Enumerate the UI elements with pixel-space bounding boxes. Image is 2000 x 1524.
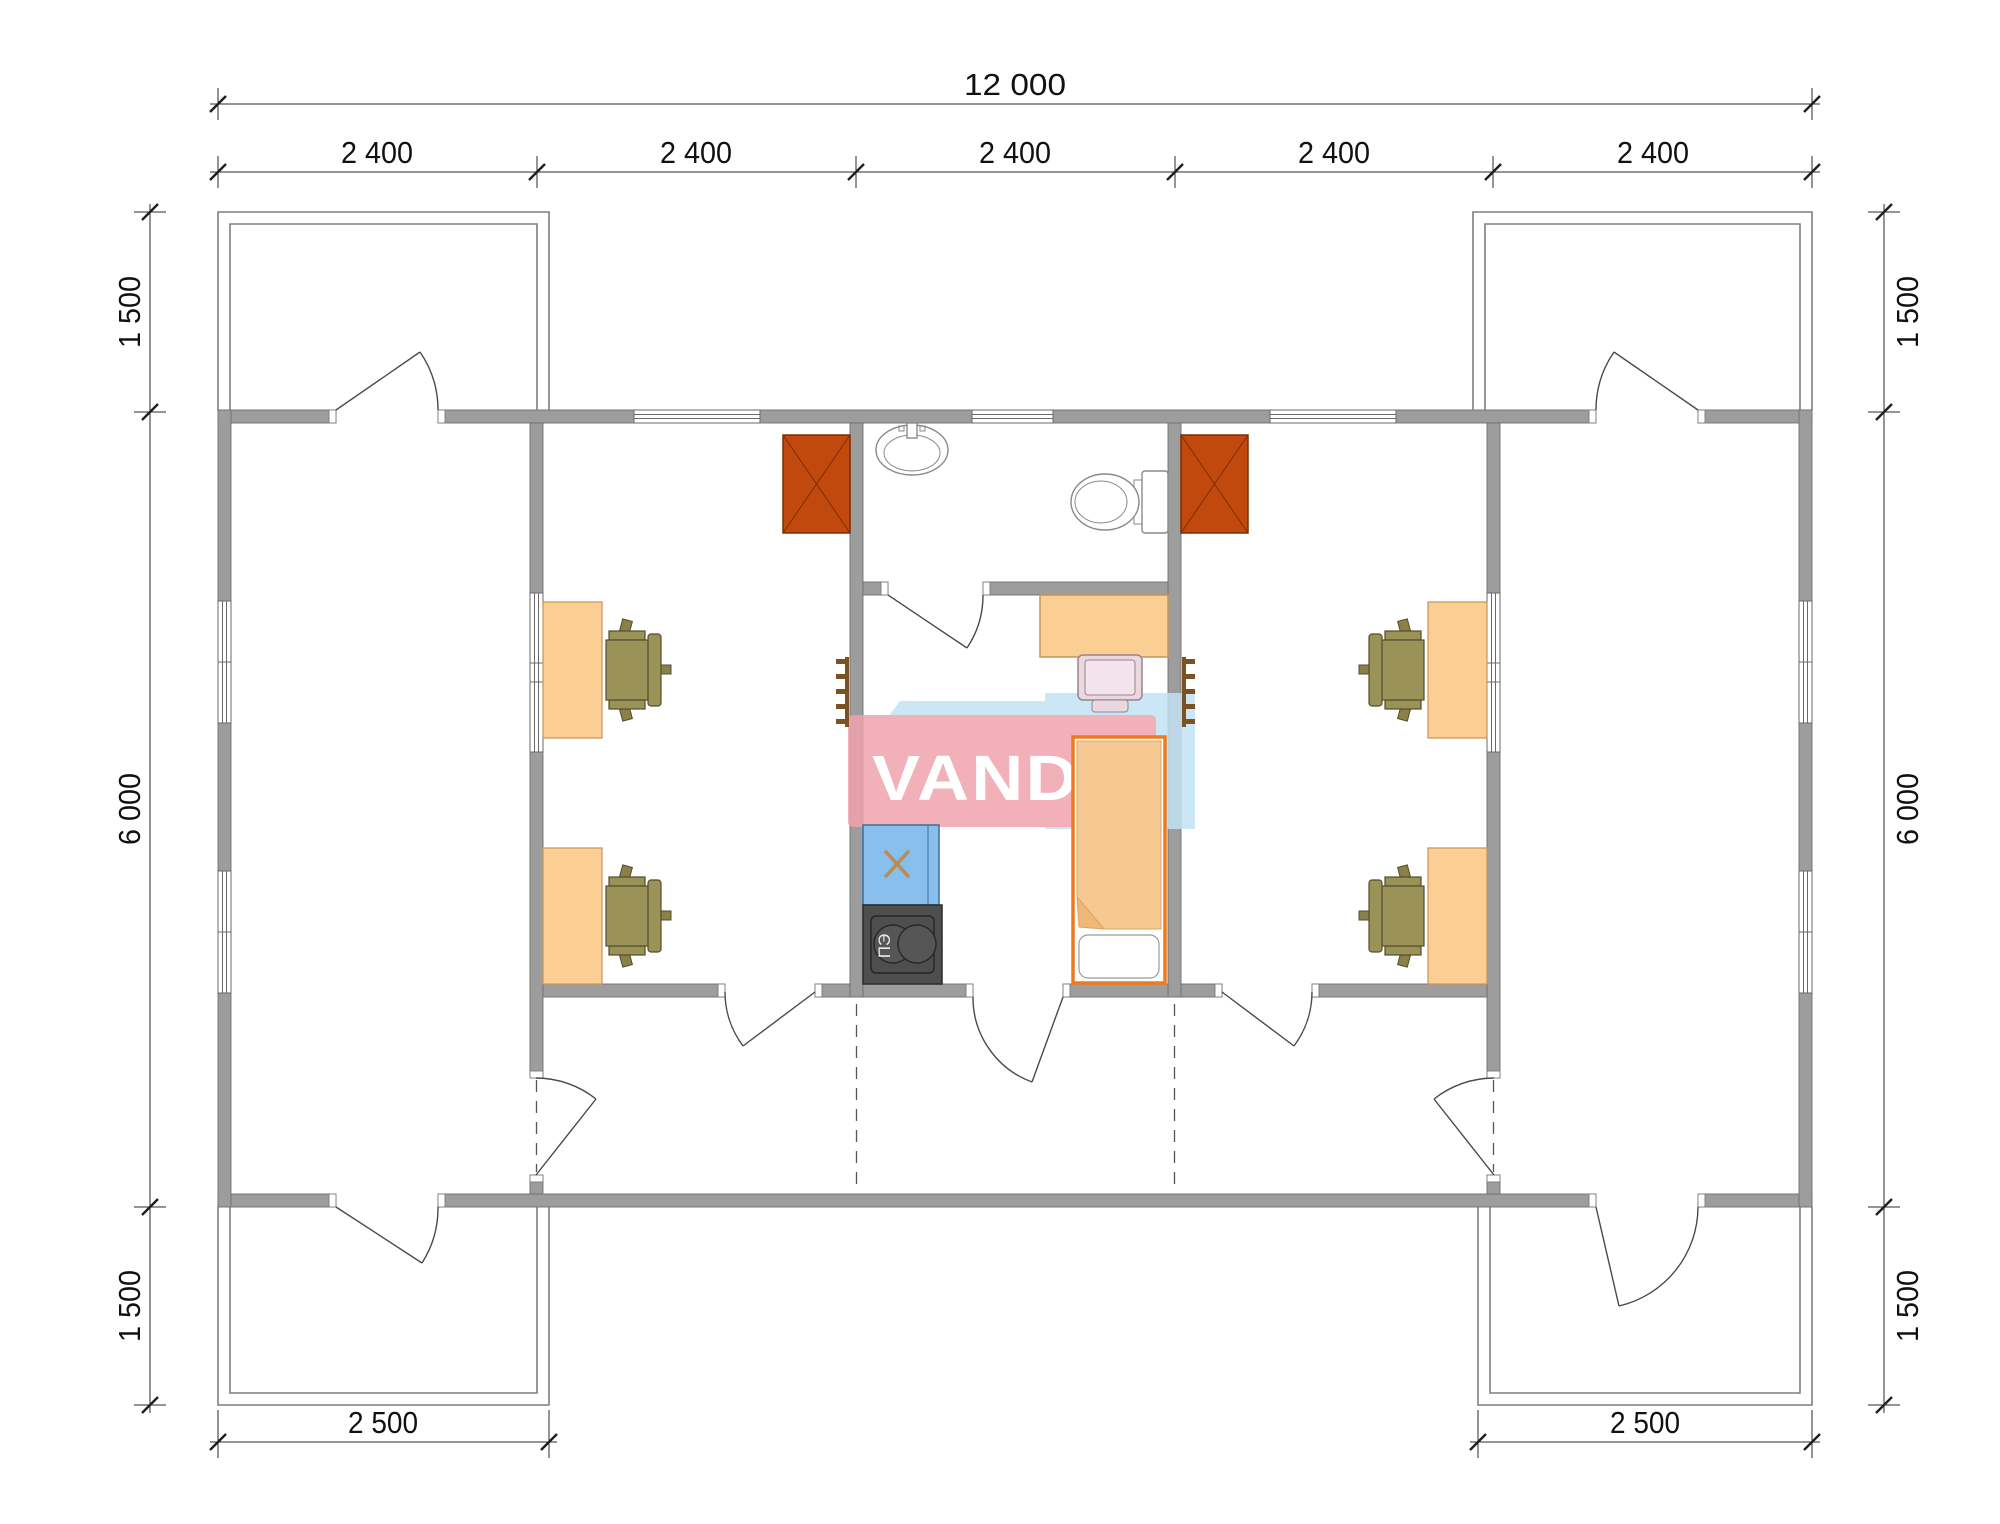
- kitchen-sink-counter-icon: [863, 825, 939, 905]
- door-bottom-right-porch: [1596, 1207, 1698, 1306]
- window-left-partition: [530, 593, 543, 752]
- window-left-wall-upper: [218, 601, 231, 723]
- left-office-chair-2-icon: [606, 865, 671, 967]
- dim-label-bay-1: 2 400: [341, 135, 413, 170]
- dim-label-left-bottom-porch-depth: 1 500: [112, 1270, 147, 1342]
- dim-label-right-bottom-porch-depth: 1 500: [1890, 1270, 1925, 1342]
- dim-label-right-body-depth: 6 000: [1890, 773, 1925, 845]
- door-top-left-porch: [336, 352, 438, 410]
- opening-markers: [537, 1004, 1494, 1190]
- wall-heater-left-icon: [836, 657, 849, 727]
- left-office-desk-2: [543, 848, 602, 984]
- window-right-wall-upper: [1799, 601, 1812, 723]
- window-top-left-office: [634, 410, 760, 423]
- door-right-room-hall: [1434, 1078, 1494, 1175]
- dimension-top-total: 12 000: [210, 67, 1820, 120]
- floor-plan-page: 12 000 2 400 2 400 2 400 2 400 2 400 1 5…: [0, 0, 2000, 1524]
- window-right-wall-lower: [1799, 871, 1812, 993]
- window-left-wall-lower: [218, 871, 231, 993]
- window-top-right-office: [1270, 410, 1396, 423]
- dim-label-left-body-depth: 6 000: [112, 773, 147, 845]
- left-office-chair-1-icon: [606, 619, 671, 721]
- furnace-right-icon: [1181, 435, 1248, 533]
- door-top-right-porch: [1596, 352, 1698, 410]
- dim-label-bay-4: 2 400: [1298, 135, 1370, 170]
- electric-stove-icon: ПЭ: [863, 905, 942, 984]
- floor-plan-drawing: 12 000 2 400 2 400 2 400 2 400 2 400 1 5…: [0, 0, 2000, 1524]
- door-left-office-hall: [725, 992, 815, 1046]
- right-office-chair-1-icon: [1359, 619, 1424, 721]
- dim-label-bottom-right-porch-width: 2 500: [1610, 1405, 1680, 1440]
- toilet-icon: [1071, 471, 1168, 533]
- dimension-bottom: 2 500 2 500: [210, 1405, 1820, 1458]
- porch-top-left: [218, 212, 549, 410]
- dim-label-left-porch-depth: 1 500: [112, 276, 147, 348]
- dim-label-total-width: 12 000: [964, 67, 1066, 102]
- window-top-bathroom: [972, 410, 1053, 423]
- right-office-chair-2-icon: [1359, 865, 1424, 967]
- center-desk: [1040, 595, 1168, 657]
- dim-label-right-porch-depth: 1 500: [1890, 276, 1925, 348]
- door-bathroom: [888, 595, 983, 648]
- dimension-top-segments: 2 400 2 400 2 400 2 400 2 400: [210, 135, 1820, 188]
- pillow-icon: [1079, 935, 1159, 978]
- bathroom-sink-icon: [876, 423, 948, 475]
- electric-stove-label: ПЭ: [875, 934, 894, 958]
- porch-bottom-right: [1478, 1207, 1812, 1405]
- door-center-room-hall: [973, 997, 1063, 1082]
- dim-label-bay-5: 2 400: [1617, 135, 1689, 170]
- dim-label-bottom-left-porch-width: 2 500: [348, 1405, 418, 1440]
- bed-icon: [1073, 737, 1165, 983]
- porch-bottom-left: [218, 1207, 549, 1405]
- right-office-desk-2: [1428, 848, 1487, 984]
- dim-label-bay-3: 2 400: [979, 135, 1051, 170]
- dimension-right: 1 500 6 000 1 500: [1868, 204, 1925, 1413]
- furnace-left-icon: [783, 435, 850, 533]
- door-bottom-left-porch: [336, 1207, 438, 1263]
- door-right-office-hall: [1222, 992, 1312, 1046]
- right-office-desk-1: [1428, 602, 1487, 738]
- dimension-left: 1 500 6 000 1 500: [112, 204, 166, 1413]
- dim-label-bay-2: 2 400: [660, 135, 732, 170]
- window-right-partition: [1487, 593, 1500, 752]
- porch-top-right: [1473, 212, 1812, 410]
- door-left-room-hall: [536, 1078, 596, 1175]
- left-office-desk-1: [543, 602, 602, 738]
